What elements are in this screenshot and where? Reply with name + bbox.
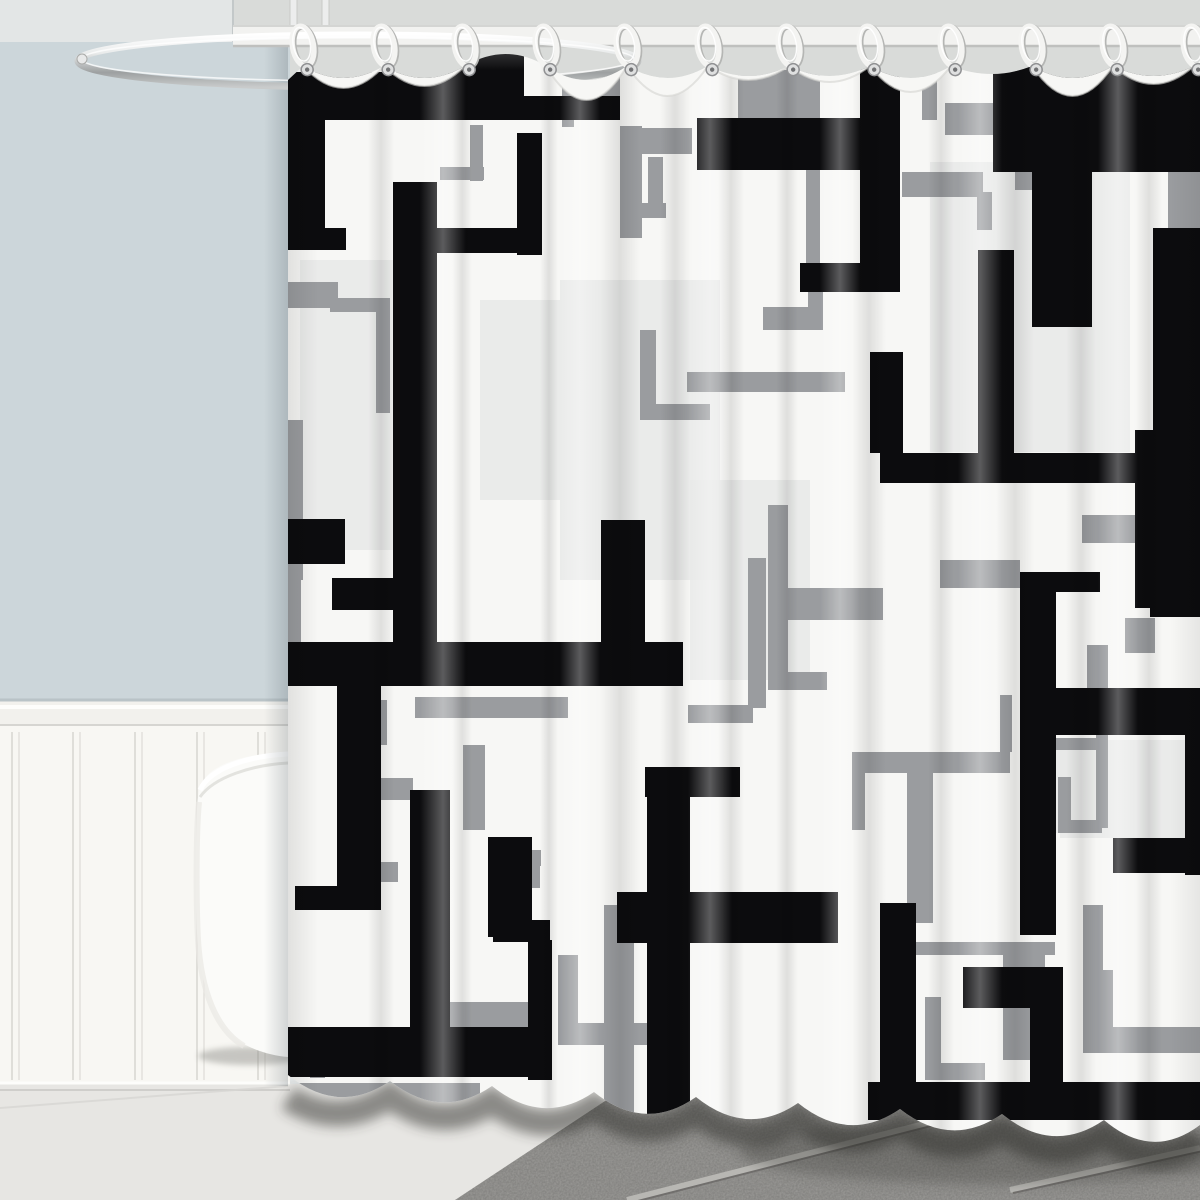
- curtain-fold-highlight-streak: [1098, 30, 1138, 1180]
- bathroom-scene-photo: [0, 0, 1200, 1200]
- curtain-right-inner-shade: [1170, 30, 1200, 1180]
- curtain-fold-highlight-streak: [420, 30, 466, 1180]
- curtain-fold-shadow-streak: [368, 30, 394, 1180]
- curtain-fold-shadow-streak: [660, 30, 690, 1180]
- curtain-fold-highlight-streak: [688, 30, 732, 1180]
- wall-shade-near-curtain: [264, 46, 288, 1086]
- curtain-fold-shadow-streak: [1136, 30, 1162, 1180]
- pattern-black-shape: [1030, 967, 1063, 1108]
- chair-rail: [0, 700, 290, 726]
- shower-curtain: [280, 30, 1200, 1200]
- curtain-left-inner-shade: [288, 30, 318, 1180]
- curtain-fold-shadow-streak: [776, 30, 798, 1180]
- pattern-gray-shape: [748, 558, 766, 708]
- curtain-fold-shadow-streak: [1066, 30, 1096, 1180]
- rod-oval-end-cap: [77, 54, 87, 64]
- curtain-fold-shadow-streak: [928, 30, 954, 1180]
- curtain-fold-shadow-streak: [540, 30, 558, 1180]
- pattern-black-shape: [285, 1027, 550, 1077]
- wall-upper-blue: [0, 42, 290, 706]
- curtain-fold-highlight-streak: [820, 30, 860, 1180]
- curtain-fold-highlight-streak: [560, 30, 600, 1180]
- curtain-fold-shadow-streak: [600, 30, 640, 1180]
- curtain-edge-wall-shade: [264, 46, 288, 1086]
- curtain-fold-highlight-streak: [958, 30, 1002, 1180]
